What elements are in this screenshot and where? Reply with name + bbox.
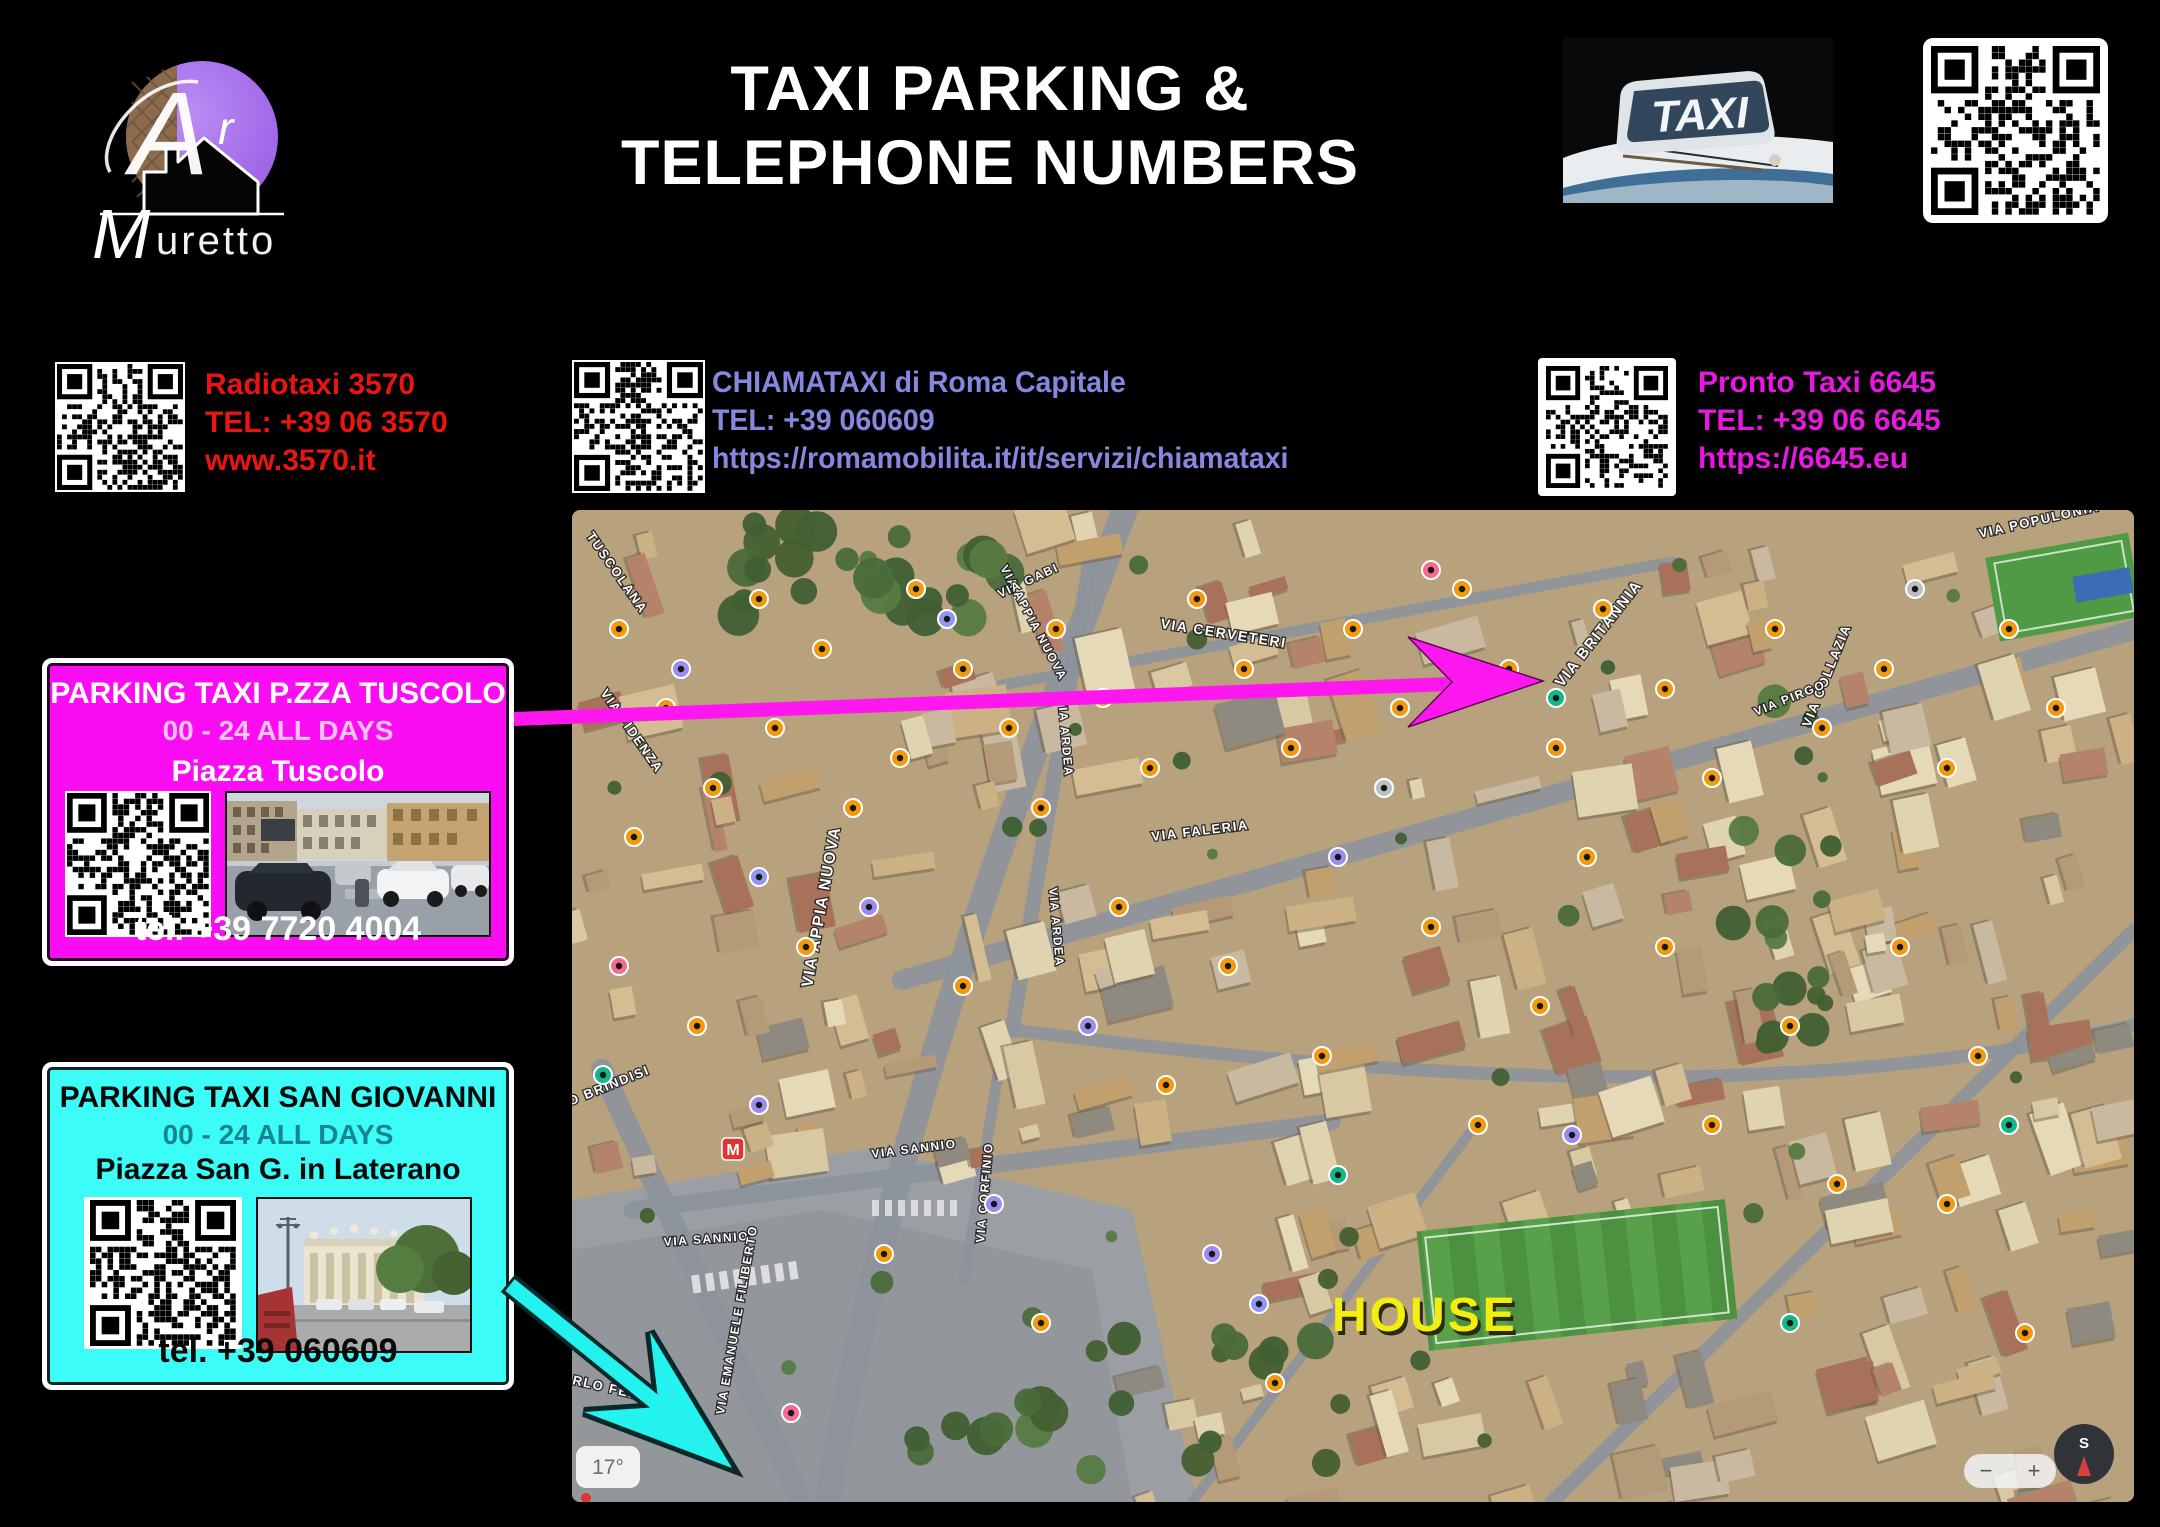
map-marker[interactable] xyxy=(1282,739,1300,757)
map-marker[interactable] xyxy=(594,1066,612,1084)
map-marker[interactable] xyxy=(1250,1295,1268,1313)
map-marker[interactable] xyxy=(672,660,690,678)
main-qr-code xyxy=(1923,38,2108,223)
aerial-map[interactable]: TUSCOLANAVIA FIDENZAVIA APPIA NUOVAVIA A… xyxy=(572,510,2134,1502)
map-marker[interactable] xyxy=(1344,620,1362,638)
map-marker[interactable] xyxy=(1703,769,1721,787)
poster-canvas: A r M uretto TAXI PARKING & TELEPHONE NU… xyxy=(0,0,2160,1527)
map-marker[interactable] xyxy=(750,868,768,886)
map-marker[interactable] xyxy=(1110,898,1128,916)
map-marker[interactable] xyxy=(1891,938,1909,956)
map-marker[interactable] xyxy=(860,898,878,916)
logo-top-r: r xyxy=(218,102,235,154)
map-marker[interactable] xyxy=(1969,1047,1987,1065)
map-marker[interactable] xyxy=(844,799,862,817)
parking-hours: 00 - 24 ALL DAYS xyxy=(47,715,509,747)
map-marker[interactable] xyxy=(766,719,784,737)
radiotaxi-contact: Radiotaxi 3570 TEL: +39 06 3570 www.3570… xyxy=(205,366,448,480)
map-marker[interactable] xyxy=(1656,938,1674,956)
map-marker[interactable] xyxy=(1079,1017,1097,1035)
contact-name: Pronto Taxi 6645 xyxy=(1698,364,1941,402)
map-marker[interactable] xyxy=(1828,1175,1846,1193)
map-marker[interactable] xyxy=(704,779,722,797)
contact-name: CHIAMATAXI di Roma Capitale xyxy=(712,364,1288,402)
san-giovanni-photo xyxy=(256,1197,472,1353)
map-marker[interactable] xyxy=(1235,660,1253,678)
map-marker[interactable] xyxy=(610,620,628,638)
map-marker[interactable] xyxy=(954,977,972,995)
parking-box-tuscolo: PARKING TAXI P.ZZA TUSCOLO 00 - 24 ALL D… xyxy=(42,658,514,966)
contact-url[interactable]: https://romamobilita.it/it/servizi/chiam… xyxy=(712,440,1288,478)
map-marker[interactable] xyxy=(1329,1166,1347,1184)
map-marker[interactable] xyxy=(1047,620,1065,638)
map-marker[interactable] xyxy=(938,610,956,628)
parking-place: Piazza San G. in Laterano xyxy=(47,1153,509,1187)
map-marker[interactable] xyxy=(1391,699,1409,717)
map-marker[interactable] xyxy=(1000,719,1018,737)
house-label: HOUSE xyxy=(1332,1289,1518,1342)
radiotaxi-qr-code xyxy=(55,362,185,492)
map-marker[interactable] xyxy=(750,1096,768,1114)
parking-title: PARKING TAXI P.ZZA TUSCOLO xyxy=(47,677,509,711)
brand-logo: A r M uretto xyxy=(52,22,292,272)
parking-tel: tel. +39 060609 xyxy=(47,1332,509,1371)
map-marker[interactable] xyxy=(1157,1076,1175,1094)
map-marker[interactable] xyxy=(1578,848,1596,866)
map-marker[interactable] xyxy=(1032,799,1050,817)
svg-text:17°: 17° xyxy=(592,1456,624,1479)
map-marker[interactable] xyxy=(907,580,925,598)
prontotaxi-qr-code xyxy=(1538,358,1676,496)
map-marker[interactable] xyxy=(954,660,972,678)
map-marker[interactable] xyxy=(1547,689,1565,707)
map-marker[interactable] xyxy=(2016,1324,2034,1342)
map-marker[interactable] xyxy=(1094,689,1112,707)
title-line1: TAXI PARKING & xyxy=(540,52,1440,126)
map-marker[interactable] xyxy=(1563,1126,1581,1144)
svg-text:S: S xyxy=(2079,1435,2089,1452)
logo-uretto: uretto xyxy=(156,219,276,263)
map-marker[interactable] xyxy=(1469,1116,1487,1134)
contact-url[interactable]: https://6645.eu xyxy=(1698,440,1941,478)
map-marker[interactable] xyxy=(657,699,675,717)
map-marker[interactable] xyxy=(1781,1017,1799,1035)
map-marker[interactable] xyxy=(1938,1195,1956,1213)
contact-url[interactable]: www.3570.it xyxy=(205,442,448,480)
map-marker[interactable] xyxy=(2047,699,2065,717)
svg-text:+: + xyxy=(2028,1458,2041,1483)
parking-tel: tel. +39 7720 4004 xyxy=(47,910,509,949)
logo-house-icon: A xyxy=(100,61,284,214)
chiamataxi-qr-code xyxy=(572,360,705,493)
taxi-sign-label: TAXI xyxy=(1650,88,1750,142)
map-marker[interactable] xyxy=(610,957,628,975)
taxi-sign-box: TAXI xyxy=(1613,70,1775,155)
parking-place: Piazza Tuscolo xyxy=(47,755,509,789)
map-marker[interactable] xyxy=(1875,660,1893,678)
svg-text:M: M xyxy=(726,1142,739,1159)
map-marker[interactable] xyxy=(797,938,815,956)
parking-hours: 00 - 24 ALL DAYS xyxy=(47,1119,509,1151)
map-marker[interactable] xyxy=(1266,1374,1284,1392)
map-marker[interactable] xyxy=(1656,680,1674,698)
title-line2: TELEPHONE NUMBERS xyxy=(540,126,1440,200)
map-marker[interactable] xyxy=(1203,1245,1221,1263)
map-marker[interactable] xyxy=(875,1245,893,1263)
map-marker[interactable] xyxy=(2000,1116,2018,1134)
map-marker[interactable] xyxy=(688,1017,706,1035)
map-marker[interactable] xyxy=(891,749,909,767)
map-marker[interactable] xyxy=(1141,759,1159,777)
map-marker[interactable] xyxy=(1500,660,1518,678)
prontotaxi-contact: Pronto Taxi 6645 TEL: +39 06 6645 https:… xyxy=(1698,364,1941,478)
map-marker[interactable] xyxy=(1188,590,1206,608)
san-giovanni-qr-code xyxy=(84,1197,242,1349)
map-marker[interactable] xyxy=(1938,759,1956,777)
metro-marker[interactable]: M xyxy=(722,1138,744,1160)
map-marker[interactable] xyxy=(1594,600,1612,618)
contact-name: Radiotaxi 3570 xyxy=(205,366,448,404)
map-marker[interactable] xyxy=(1531,997,1549,1015)
page-title: TAXI PARKING & TELEPHONE NUMBERS xyxy=(540,52,1440,200)
chiamataxi-contact: CHIAMATAXI di Roma Capitale TEL: +39 060… xyxy=(712,364,1288,478)
map-marker[interactable] xyxy=(1422,918,1440,936)
zoom-control[interactable]: −+ xyxy=(1964,1454,2056,1488)
parking-box-san-giovanni: PARKING TAXI SAN GIOVANNI 00 - 24 ALL DA… xyxy=(42,1062,514,1390)
map-marker[interactable] xyxy=(1906,580,1924,598)
map-marker[interactable] xyxy=(985,1195,1003,1213)
map-marker[interactable] xyxy=(750,590,768,608)
map-marker[interactable] xyxy=(1813,719,1831,737)
map-marker[interactable] xyxy=(1547,739,1565,757)
compass[interactable]: S xyxy=(2054,1424,2114,1484)
contact-tel: TEL: +39 06 3570 xyxy=(205,404,448,442)
map-marker[interactable] xyxy=(782,1404,800,1422)
map-marker[interactable] xyxy=(1032,1314,1050,1332)
map-marker[interactable] xyxy=(1766,620,1784,638)
map-marker[interactable] xyxy=(1422,561,1440,579)
contact-tel: TEL: +39 060609 xyxy=(712,402,1288,440)
map-marker[interactable] xyxy=(1453,580,1471,598)
map-marker[interactable] xyxy=(2000,620,2018,638)
map-marker[interactable] xyxy=(1313,1047,1331,1065)
map-marker[interactable] xyxy=(1781,1314,1799,1332)
map-marker[interactable] xyxy=(1703,1116,1721,1134)
svg-text:A: A xyxy=(124,68,209,200)
map-marker[interactable] xyxy=(1375,779,1393,797)
logo-m: M xyxy=(92,195,151,272)
map-marker[interactable] xyxy=(625,828,643,846)
taxi-sign-photo: TAXI xyxy=(1563,38,1833,203)
parking-title: PARKING TAXI SAN GIOVANNI xyxy=(47,1081,509,1115)
contact-tel: TEL: +39 06 6645 xyxy=(1698,402,1941,440)
map-marker[interactable] xyxy=(1329,848,1347,866)
svg-text:−: − xyxy=(1980,1458,1993,1483)
map-marker[interactable] xyxy=(813,640,831,658)
map-marker[interactable] xyxy=(1219,957,1237,975)
